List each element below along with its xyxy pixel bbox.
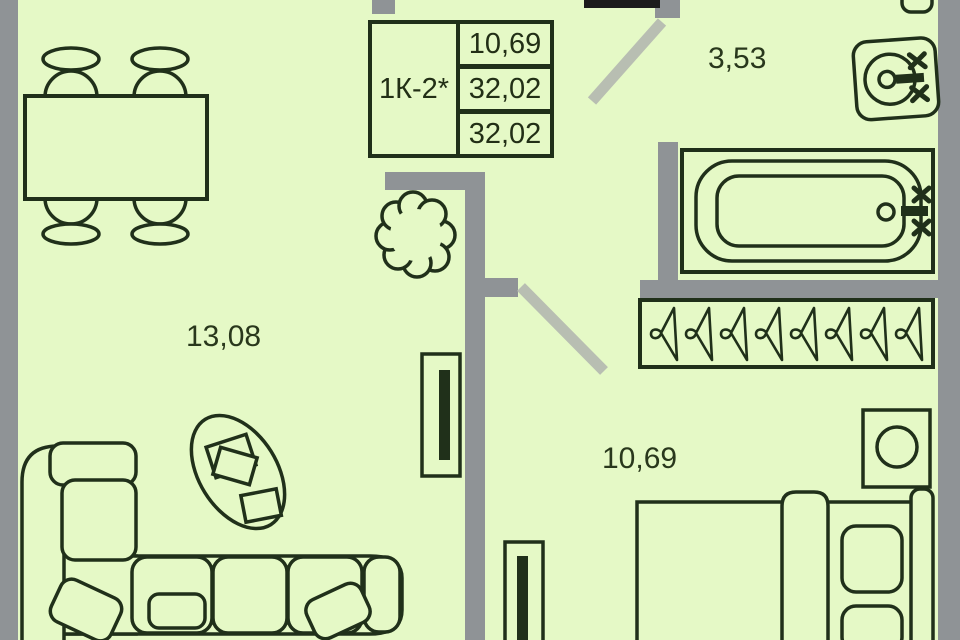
radiator — [505, 542, 543, 640]
hanger-icon — [896, 308, 922, 360]
nightstand — [863, 410, 930, 487]
bedroom-door-swing — [521, 287, 604, 371]
dining-chair-back — [43, 224, 99, 244]
floor-plan: 1К-2* 10,69 32,02 32,02 3,53 13,08 10,69 — [0, 0, 960, 640]
dining-table — [25, 96, 207, 199]
title-block: 1К-2* 10,69 32,02 32,02 — [368, 20, 554, 158]
hanger-icon — [826, 308, 852, 360]
drain-icon — [878, 71, 895, 88]
hanger-icon — [651, 308, 677, 360]
unit-label: 1К-2* — [372, 24, 460, 154]
dining-set — [25, 48, 207, 244]
left-wall — [0, 0, 18, 640]
magazine — [241, 489, 281, 522]
bathroom-wall-left — [658, 142, 678, 280]
area-row-total: 32,02 — [460, 69, 550, 114]
plant — [376, 192, 455, 277]
partition-wall-vertical — [465, 190, 485, 640]
wardrobe — [640, 300, 933, 367]
living-room-area-label: 13,08 — [186, 320, 261, 354]
dining-chair-back — [43, 48, 99, 70]
hall-wall-horizontal — [385, 172, 485, 190]
sink — [852, 37, 939, 121]
entrance-door-bar — [584, 0, 660, 8]
hanger-icon — [791, 308, 817, 360]
bed-pillow — [842, 606, 902, 640]
bathroom-area-label: 3,53 — [708, 42, 766, 76]
sofa-armrest-right — [364, 557, 400, 632]
dining-chair-back — [132, 224, 188, 244]
fixture-cutoff — [902, 0, 932, 12]
bed-pillow — [842, 526, 902, 592]
bedroom-area-label: 10,69 — [602, 442, 677, 476]
drain-icon — [878, 204, 894, 220]
bed — [637, 489, 933, 640]
bathtub — [682, 150, 933, 272]
hanger-icon — [756, 308, 782, 360]
dining-chair-back — [132, 48, 188, 70]
area-table: 10,69 32,02 32,02 — [460, 24, 550, 154]
radiator — [422, 354, 460, 476]
bed-blanket-fold — [782, 492, 828, 640]
bathroom-wall-bottom — [640, 280, 960, 298]
right-wall — [938, 0, 960, 640]
top-wall-stub — [372, 0, 395, 14]
sofa-back-cushion — [62, 480, 136, 560]
sofa-seat-cushion — [213, 557, 287, 633]
hanger-icon — [861, 308, 887, 360]
bed-headboard — [911, 489, 933, 640]
bedroom-door-stub-wall — [485, 278, 518, 297]
hanger-icon — [686, 308, 712, 360]
coffee-table — [172, 399, 304, 545]
bathroom-door-swing — [592, 22, 662, 101]
hanger-icon — [721, 308, 747, 360]
sofa-seat-pad — [149, 594, 205, 628]
area-row-overall: 32,02 — [460, 114, 550, 154]
area-row-living: 10,69 — [460, 24, 550, 69]
